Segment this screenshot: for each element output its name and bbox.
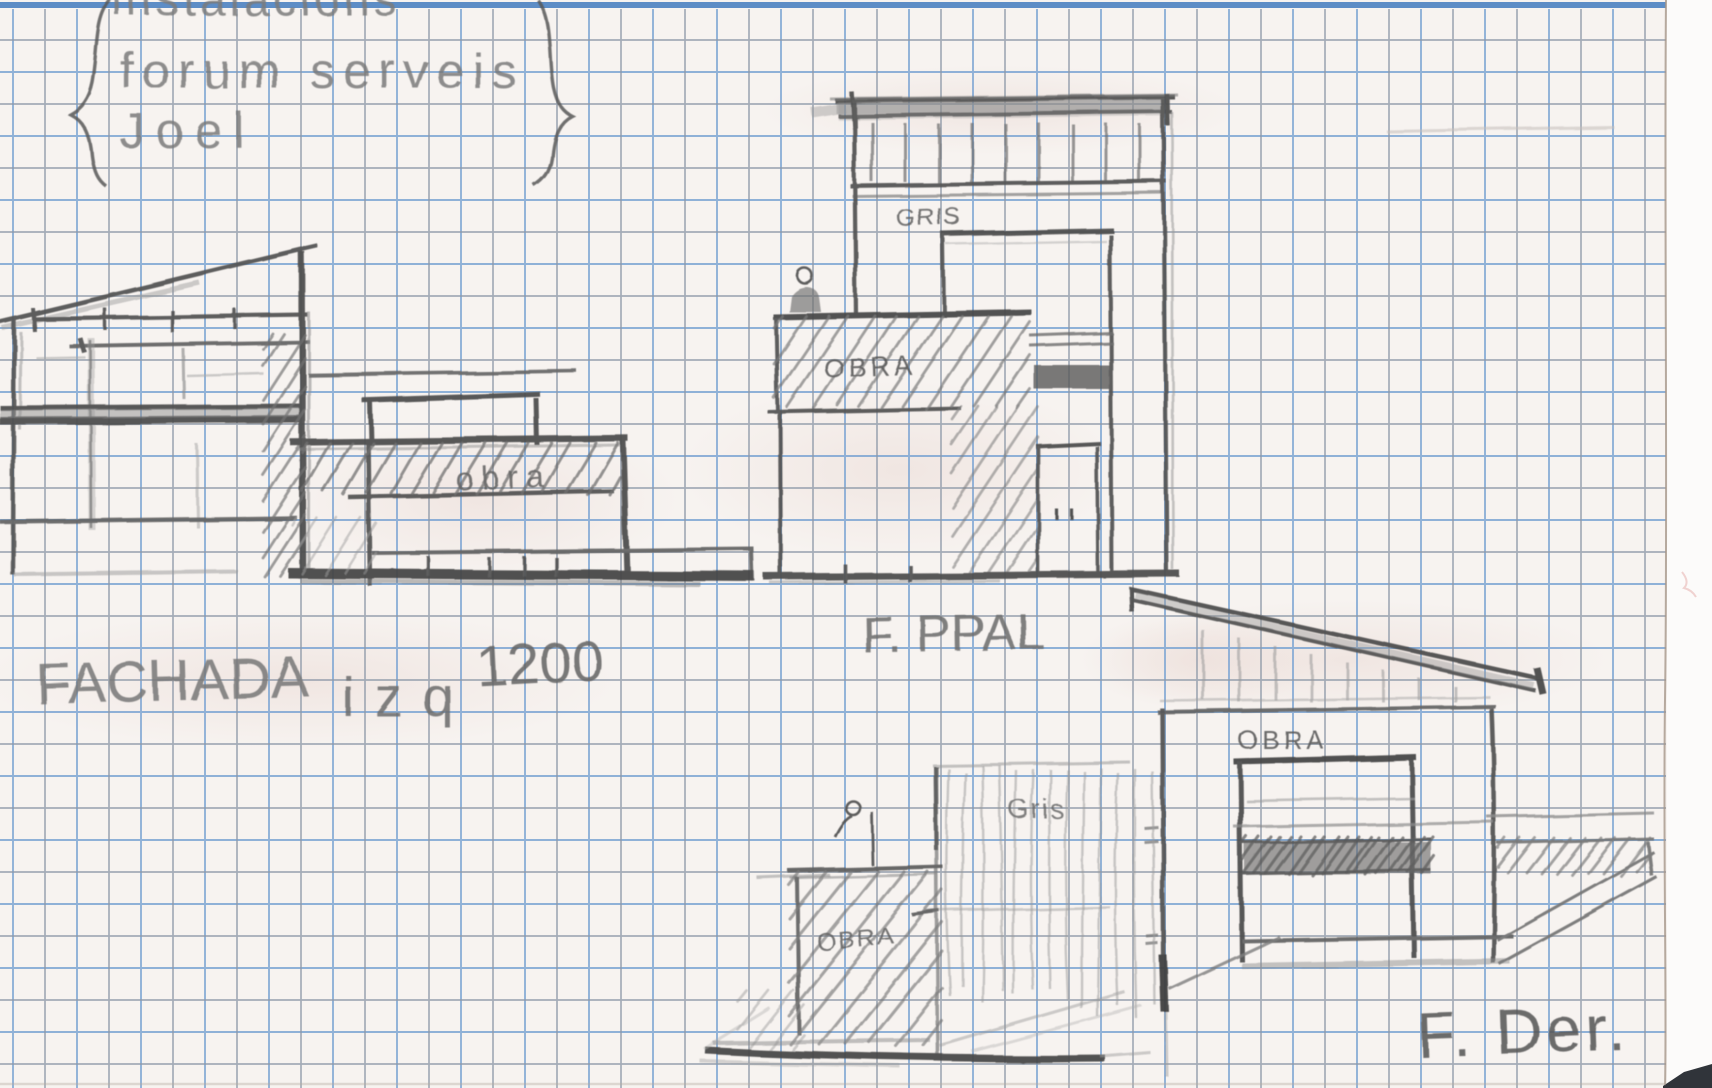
svg-text:obra: obra <box>455 458 552 497</box>
svg-text:FACHADA: FACHADA <box>35 645 311 717</box>
svg-text:F. Der.: F. Der. <box>1415 992 1630 1071</box>
svg-text:F. PPAL: F. PPAL <box>861 604 1046 665</box>
svg-text:izq: izq <box>342 665 474 728</box>
svg-text:Gris: Gris <box>1008 794 1066 824</box>
svg-text:forum serveis: forum serveis <box>120 43 524 99</box>
svg-text:1200: 1200 <box>474 628 604 699</box>
svg-text:OBRA: OBRA <box>1238 725 1328 755</box>
svg-text:instalacions: instalacions <box>112 0 400 25</box>
svg-text:OBRA: OBRA <box>823 351 917 384</box>
svg-text:Joel: Joel <box>120 103 256 159</box>
svg-text:GRIS: GRIS <box>896 203 962 233</box>
